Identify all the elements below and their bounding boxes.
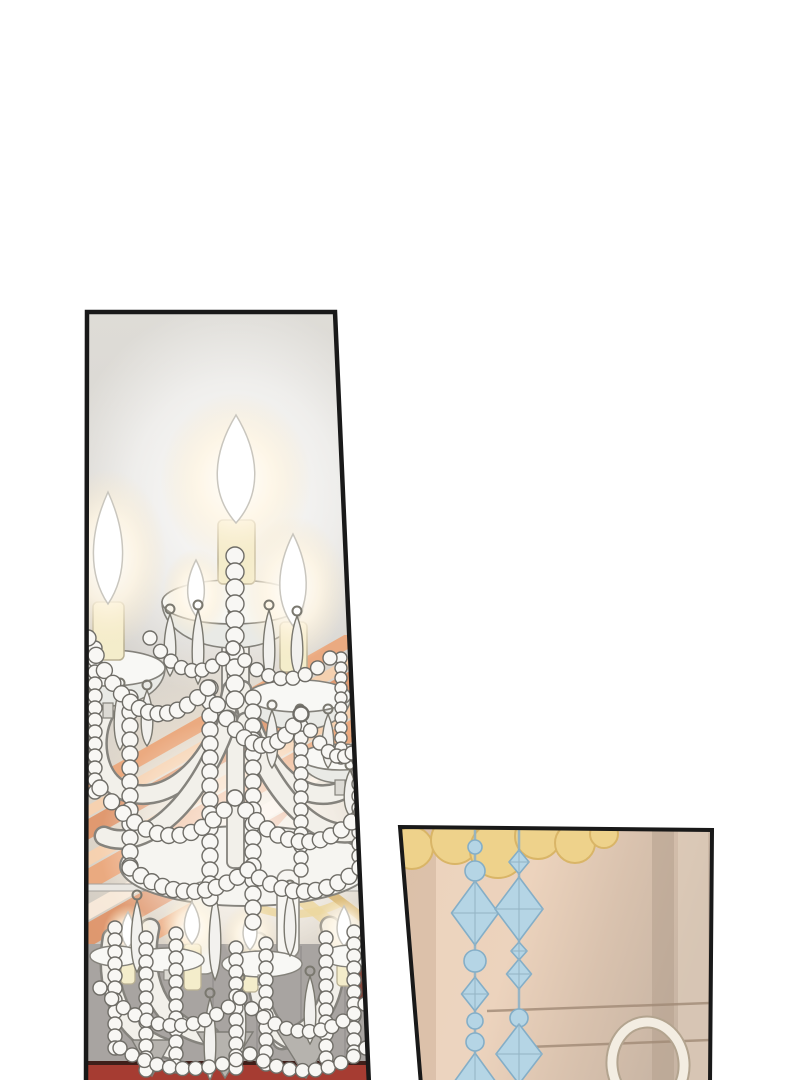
- gold-ornament: [515, 813, 561, 859]
- bead: [215, 1057, 229, 1071]
- blue-bead-circle: [464, 950, 486, 972]
- bead-chain: [319, 931, 333, 1065]
- bead: [269, 1059, 283, 1073]
- bead: [323, 651, 337, 665]
- bead: [308, 1063, 322, 1077]
- bead: [226, 595, 244, 613]
- bead: [233, 991, 247, 1005]
- bead: [226, 547, 244, 565]
- bead: [283, 1062, 297, 1076]
- blue-bead-circle: [468, 840, 482, 854]
- bead: [200, 680, 216, 696]
- gold-ornament: [391, 827, 433, 869]
- bead: [150, 1058, 164, 1072]
- bobeche-stem: [103, 703, 113, 718]
- bead-chain: [335, 652, 347, 764]
- blue-bead-circle: [467, 1013, 483, 1029]
- bead: [294, 863, 308, 877]
- comic-page: [0, 0, 800, 1080]
- bead: [226, 641, 240, 655]
- blue-bead-circle: [465, 861, 485, 881]
- bead: [163, 1060, 177, 1074]
- comic-art: [0, 0, 800, 1080]
- bobeche-stem: [335, 780, 345, 795]
- bead: [88, 647, 104, 663]
- bead: [226, 611, 244, 629]
- bead: [202, 1060, 216, 1074]
- bead: [238, 653, 252, 667]
- bead: [334, 1056, 348, 1070]
- bead: [92, 780, 108, 796]
- bead: [189, 1061, 203, 1075]
- bead-chain: [108, 921, 122, 1055]
- bead: [347, 1049, 361, 1063]
- bead: [294, 707, 308, 721]
- bead: [226, 579, 244, 597]
- bead: [245, 1002, 259, 1016]
- bead: [143, 631, 157, 645]
- bead: [221, 1000, 235, 1014]
- bead: [226, 691, 244, 709]
- bead: [229, 1053, 243, 1067]
- bead: [359, 727, 373, 741]
- blue-bead-circle: [466, 1033, 484, 1051]
- bead: [304, 724, 318, 738]
- bead-chain: [259, 937, 273, 1071]
- bead: [256, 1054, 270, 1068]
- bead: [311, 661, 325, 675]
- bead-chain: [122, 690, 138, 874]
- bead: [226, 675, 244, 693]
- panel-door: [391, 813, 717, 1080]
- bead: [209, 697, 225, 713]
- bead: [321, 1060, 335, 1074]
- bead: [216, 652, 230, 666]
- bead: [226, 563, 244, 581]
- bead: [296, 1064, 310, 1078]
- gold-ornament: [590, 820, 618, 848]
- bead: [93, 981, 107, 995]
- bead: [243, 1047, 257, 1061]
- bead: [176, 1062, 190, 1076]
- bead: [245, 914, 261, 930]
- bead: [105, 992, 119, 1006]
- bead-chain: [347, 925, 361, 1059]
